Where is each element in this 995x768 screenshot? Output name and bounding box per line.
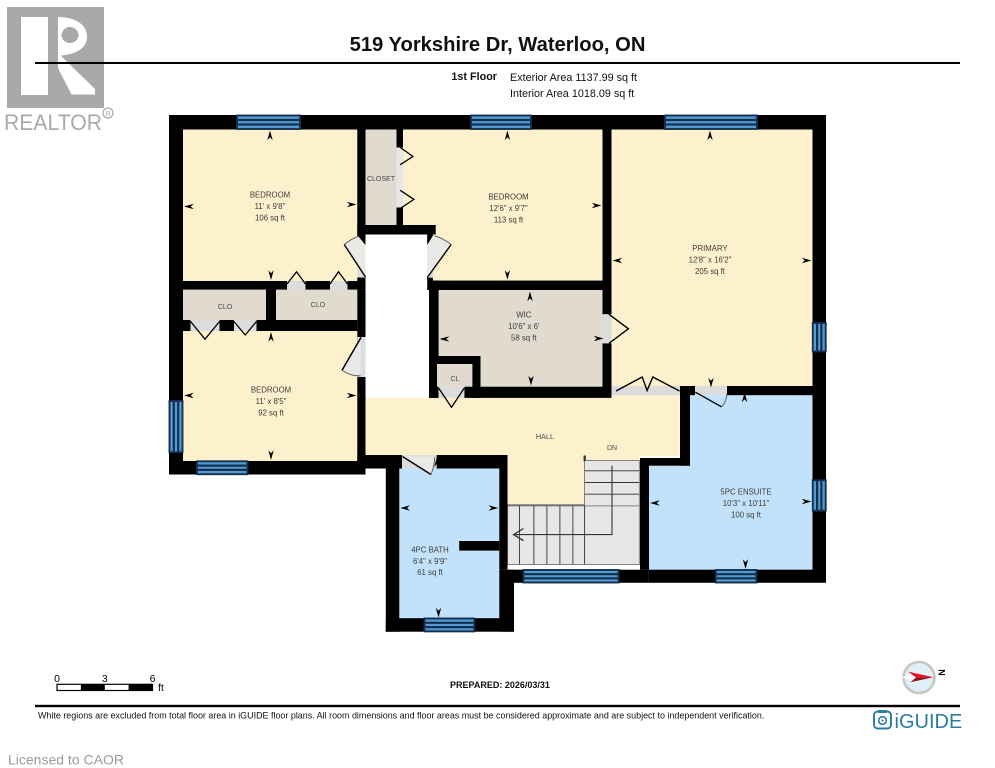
svg-text:6: 6 (150, 673, 156, 685)
svg-text:White regions are excluded fro: White regions are excluded from total fl… (38, 711, 764, 721)
svg-text:3: 3 (102, 673, 108, 685)
svg-text:iGUIDE: iGUIDE (895, 711, 963, 733)
svg-text:ft: ft (158, 682, 164, 694)
svg-text:0: 0 (54, 673, 60, 685)
svg-text:Licensed to CAOR: Licensed to CAOR (8, 752, 124, 768)
svg-text:N: N (937, 669, 947, 676)
svg-text:PREPARED: 2026/03/31: PREPARED: 2026/03/31 (450, 680, 550, 690)
